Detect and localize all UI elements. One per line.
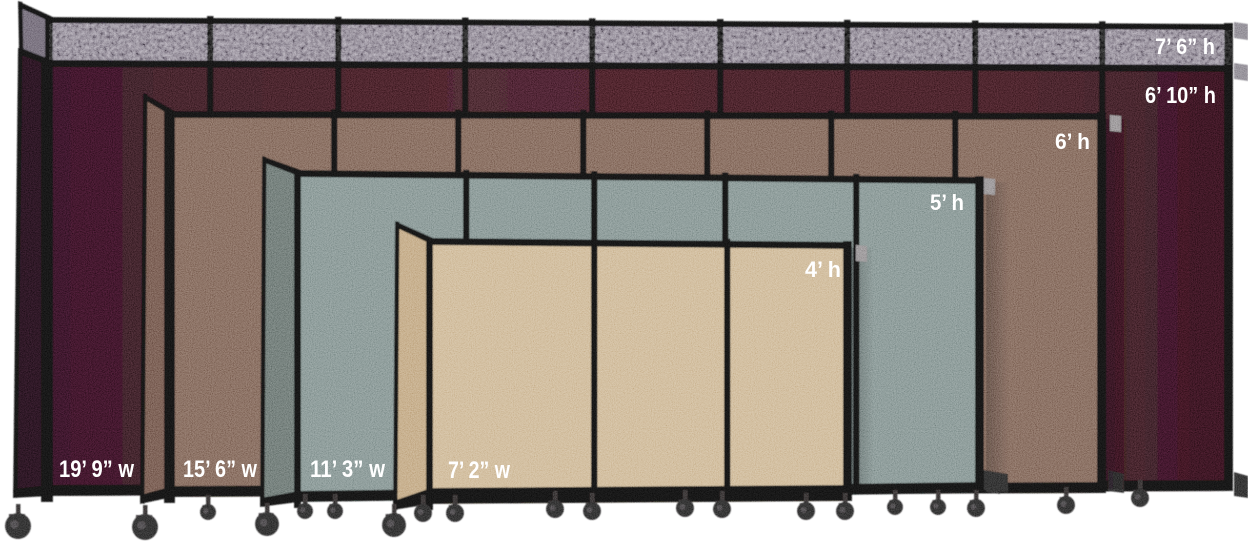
svg-text:7’ 6” h: 7’ 6” h bbox=[1155, 34, 1215, 59]
svg-text:6’ h: 6’ h bbox=[1055, 129, 1090, 154]
svg-text:7’ 2” w: 7’ 2” w bbox=[448, 457, 510, 484]
svg-text:19’ 9” w: 19’ 9” w bbox=[59, 456, 134, 483]
svg-text:15’ 6” w: 15’ 6” w bbox=[183, 456, 257, 483]
svg-text:6’ 10” h: 6’ 10” h bbox=[1145, 82, 1216, 108]
svg-text:11’ 3” w: 11’ 3” w bbox=[310, 456, 385, 483]
svg-text:4’ h: 4’ h bbox=[805, 257, 841, 282]
svg-text:5’ h: 5’ h bbox=[930, 190, 964, 215]
